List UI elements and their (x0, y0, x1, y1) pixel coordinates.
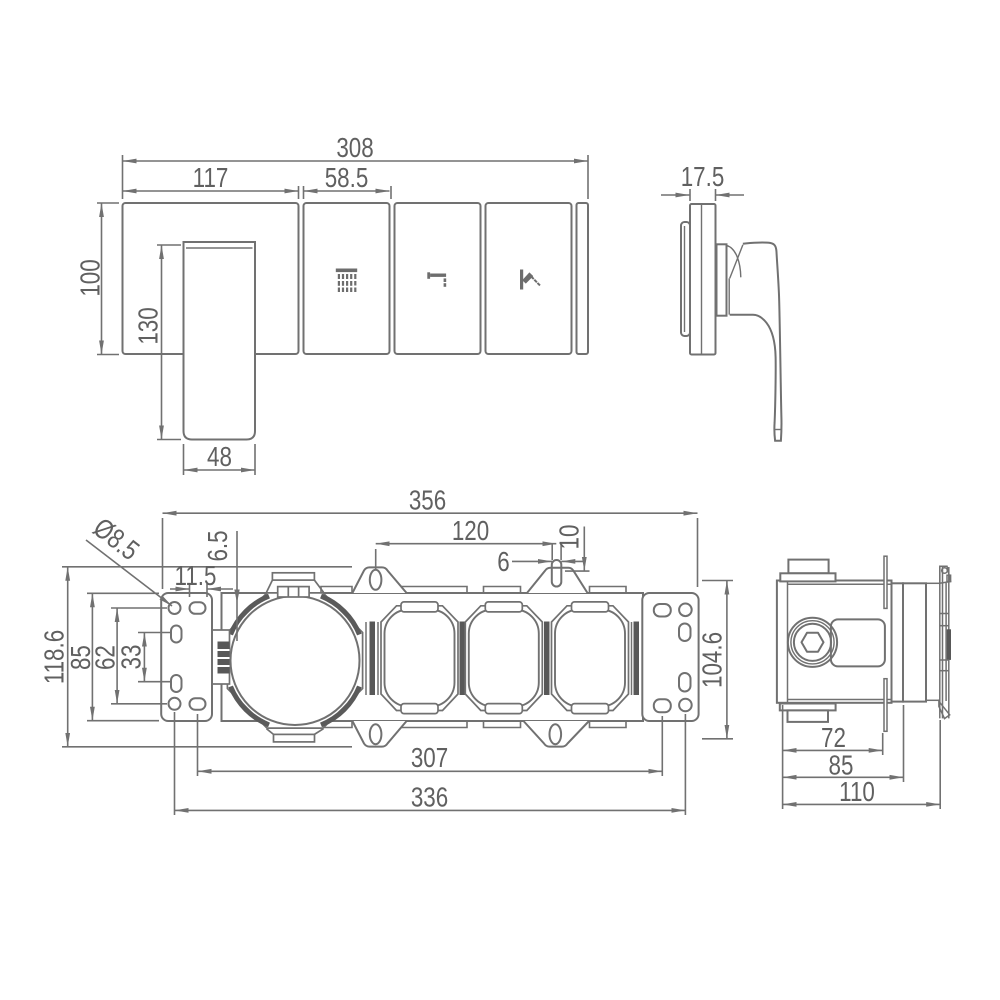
svg-text:48: 48 (207, 442, 232, 473)
svg-text:10: 10 (554, 525, 585, 550)
svg-text:104.6: 104.6 (697, 632, 728, 688)
svg-text:72: 72 (821, 723, 846, 754)
svg-text:307: 307 (411, 743, 448, 774)
svg-text:100: 100 (75, 259, 106, 296)
svg-text:17.5: 17.5 (681, 162, 725, 193)
svg-text:356: 356 (409, 485, 446, 516)
svg-text:6.5: 6.5 (203, 530, 234, 561)
svg-text:11.5: 11.5 (175, 561, 217, 592)
svg-text:120: 120 (452, 516, 489, 547)
svg-text:6: 6 (497, 547, 509, 578)
svg-text:33: 33 (116, 645, 147, 670)
svg-text:110: 110 (839, 777, 875, 808)
svg-text:130: 130 (133, 307, 164, 344)
svg-text:58.5: 58.5 (325, 163, 369, 194)
svg-text:336: 336 (411, 782, 448, 813)
svg-text:308: 308 (336, 133, 373, 164)
svg-text:117: 117 (193, 163, 229, 194)
